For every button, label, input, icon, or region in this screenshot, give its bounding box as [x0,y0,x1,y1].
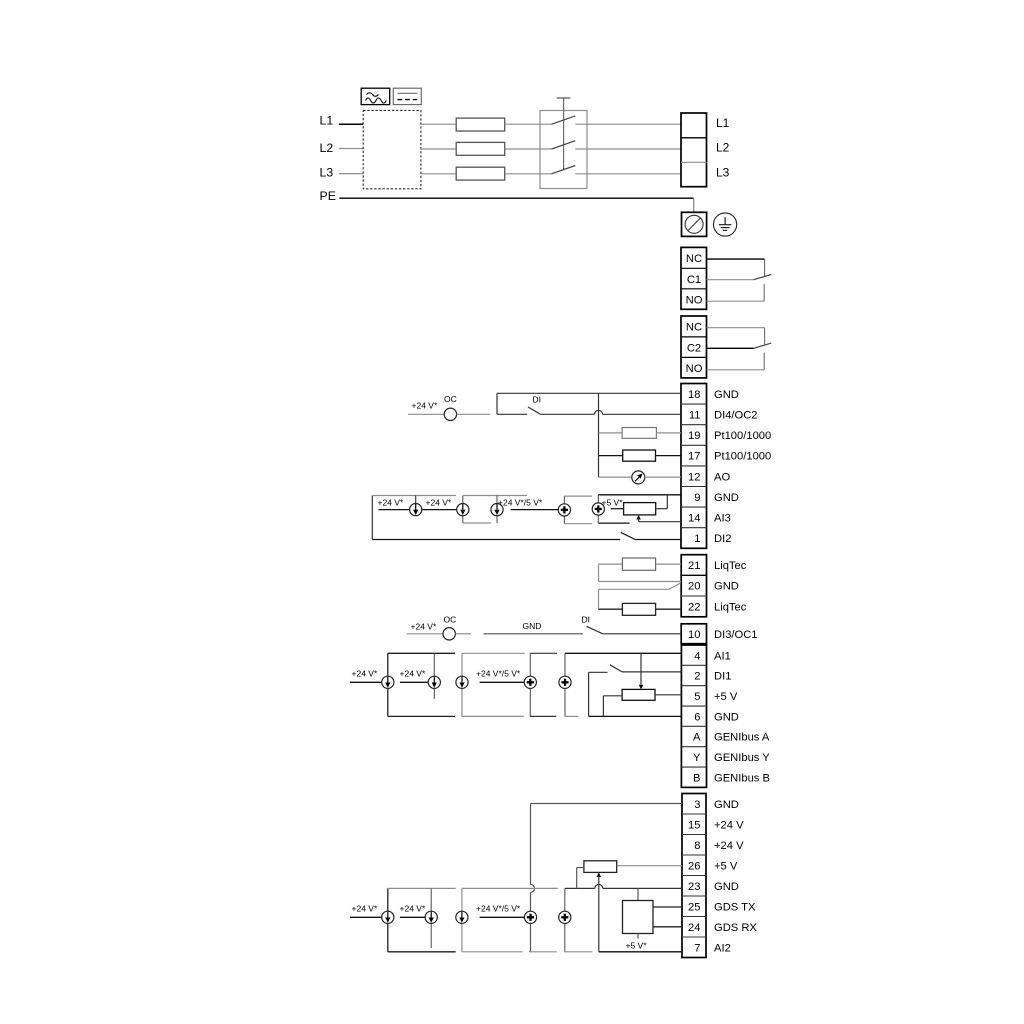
svg-text:DI: DI [533,394,542,404]
svg-text:+24 V*: +24 V* [411,621,437,631]
svg-text:L3: L3 [716,166,730,180]
svg-text:OC: OC [444,615,457,625]
svg-text:GND: GND [714,389,739,401]
svg-text:11: 11 [689,410,701,422]
svg-text:10: 10 [688,629,700,641]
svg-text:3: 3 [694,799,700,811]
svg-text:17: 17 [688,451,700,463]
svg-text:GDS RX: GDS RX [714,922,757,934]
svg-text:L1: L1 [320,114,334,128]
svg-text:NO: NO [686,363,703,375]
svg-text:AO: AO [714,471,730,483]
svg-text:L2: L2 [716,140,730,154]
svg-text:A: A [693,732,701,744]
svg-text:DI: DI [582,615,591,625]
svg-text:GND: GND [714,711,739,723]
svg-text:18: 18 [688,389,700,401]
svg-text:DI1: DI1 [714,671,731,683]
svg-text:24: 24 [688,922,700,934]
svg-text:LiqTec: LiqTec [714,560,747,572]
svg-text:B: B [693,772,700,784]
svg-text:22: 22 [688,602,700,614]
svg-text:AI3: AI3 [714,513,731,525]
svg-text:+5 V*: +5 V* [626,941,648,951]
svg-text:DI4/OC2: DI4/OC2 [714,410,758,422]
svg-text:NC: NC [686,253,702,265]
svg-text:14: 14 [688,513,700,525]
svg-text:+5 V: +5 V [714,691,738,703]
svg-text:+24 V*: +24 V* [378,498,404,508]
svg-text:2: 2 [694,671,700,683]
svg-text:5: 5 [694,691,700,703]
svg-text:+5 V*: +5 V* [602,497,624,507]
svg-text:+24 V: +24 V [714,840,744,852]
svg-text:LiqTec: LiqTec [714,602,747,614]
svg-text:GENIbus B: GENIbus B [714,772,770,784]
svg-text:7: 7 [694,942,700,954]
svg-text:Pt100/1000: Pt100/1000 [714,430,771,442]
svg-text:L3: L3 [320,165,334,179]
svg-text:DI2: DI2 [714,533,731,545]
svg-text:+24 V*: +24 V* [352,669,378,679]
svg-text:AI2: AI2 [714,942,731,954]
svg-text:+24 V*/5 V*: +24 V*/5 V* [476,669,521,679]
svg-text:DI3/OC1: DI3/OC1 [714,629,758,641]
svg-text:25: 25 [688,901,700,913]
svg-text:20: 20 [688,581,700,593]
svg-text:NC: NC [686,322,702,334]
svg-text:GND: GND [523,621,542,631]
svg-text:9: 9 [694,492,700,504]
svg-text:12: 12 [688,471,700,483]
svg-text:GENIbus Y: GENIbus Y [714,752,770,764]
svg-text:+24 V: +24 V [714,819,744,831]
svg-text:+24 V*: +24 V* [426,498,452,508]
svg-text:8: 8 [694,840,700,852]
svg-text:GND: GND [714,799,739,811]
svg-text:GDS TX: GDS TX [714,901,756,913]
svg-text:AI1: AI1 [714,650,731,662]
svg-text:Pt100/1000: Pt100/1000 [714,451,771,463]
svg-text:GND: GND [714,581,739,593]
svg-text:+24 V*: +24 V* [352,904,378,914]
svg-text:NO: NO [686,294,703,306]
svg-text:Y: Y [693,752,701,764]
svg-text:+24 V*/5 V*: +24 V*/5 V* [476,904,521,914]
svg-text:L2: L2 [320,141,334,155]
svg-text:19: 19 [688,430,700,442]
svg-text:C1: C1 [687,274,701,286]
svg-text:GENIbus A: GENIbus A [714,732,770,744]
svg-text:21: 21 [688,560,700,572]
svg-text:+24 V*: +24 V* [400,669,426,679]
svg-text:+24 V*: +24 V* [400,904,426,914]
svg-text:26: 26 [688,860,700,872]
svg-text:OC: OC [444,394,457,404]
svg-text:+5 V: +5 V [714,860,738,872]
svg-text:GND: GND [714,492,739,504]
svg-text:1: 1 [694,533,700,545]
svg-text:GND: GND [714,881,739,893]
svg-text:+24 V*/5 V*: +24 V*/5 V* [498,498,543,508]
svg-text:L1: L1 [716,116,730,130]
svg-text:6: 6 [694,711,700,723]
svg-text:C2: C2 [687,342,701,354]
svg-text:PE: PE [320,189,336,203]
svg-text:4: 4 [694,650,700,662]
svg-text:23: 23 [688,881,700,893]
svg-text:+24 V*: +24 V* [412,400,438,410]
svg-text:15: 15 [688,819,700,831]
